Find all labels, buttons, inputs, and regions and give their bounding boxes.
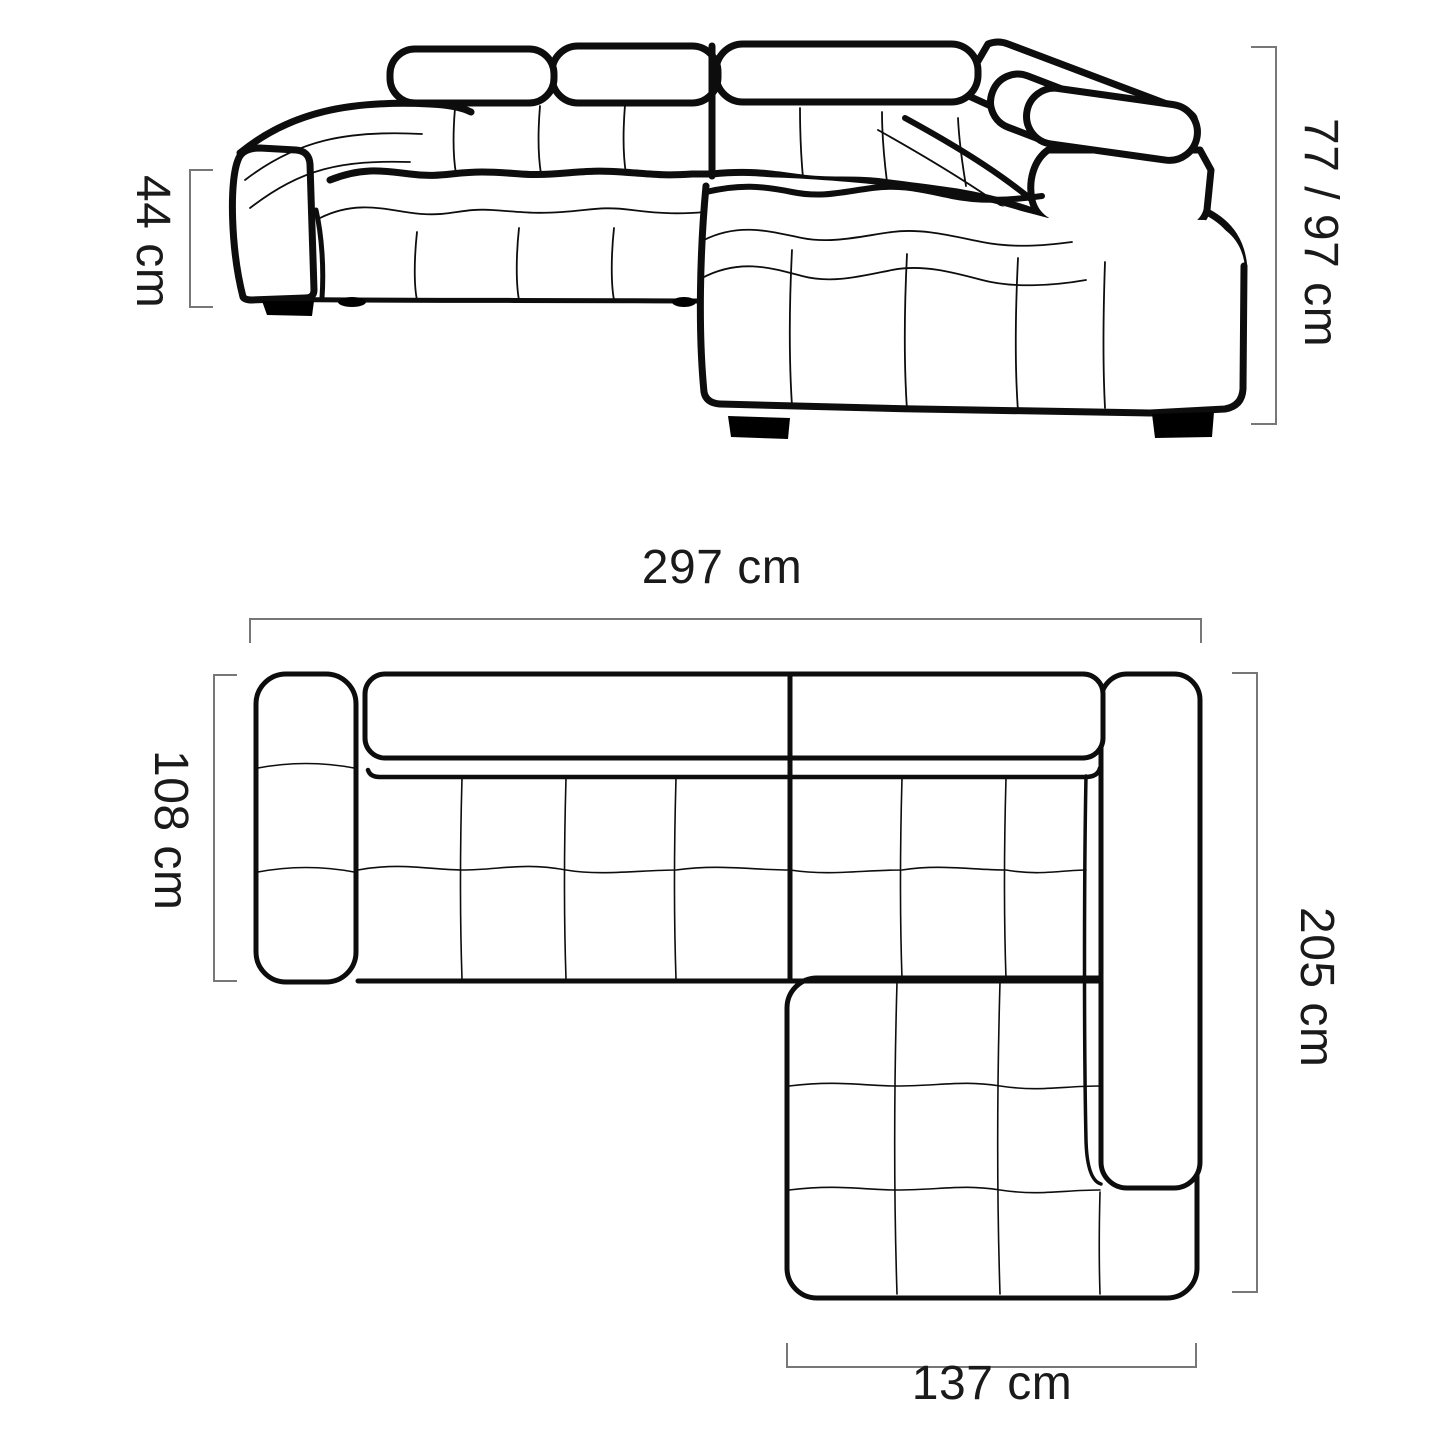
bracket-seat-height [190, 170, 213, 307]
dimension-label-total-height: 77 / 97 cm [1288, 88, 1348, 378]
dimension-label-seat-height: 44 cm [120, 162, 180, 322]
plan-chaise-tuft [1099, 1192, 1100, 1294]
plan-right-armrest [1101, 674, 1200, 1188]
plan-backrest [365, 674, 1103, 758]
plan-seat-tuft [358, 866, 1086, 872]
back-tuft-line [882, 112, 887, 182]
sofa-dimension-diagram: 44 cm 77 / 97 cm 297 cm 108 cm 205 cm 13… [0, 0, 1440, 1440]
sofa-foot [672, 297, 696, 307]
chaise-foot [1152, 412, 1214, 438]
back-tuft-line [800, 108, 803, 178]
seat-tuft-line [612, 228, 614, 300]
back-tuft-line [624, 105, 626, 174]
plan-seat-tuft [675, 778, 677, 979]
plan-left-armrest [256, 674, 356, 982]
headrest-cushion-3 [716, 44, 978, 102]
seat-tuft-wave [320, 207, 705, 218]
seat-tuft-line [517, 228, 519, 300]
dimension-label-total-depth: 205 cm [1284, 902, 1344, 1072]
bracket-total-depth [1232, 673, 1257, 1292]
seat-base-line [262, 299, 700, 301]
bracket-total-height [1251, 47, 1276, 424]
left-armrest-front [232, 148, 314, 300]
plan-seat-tuft [461, 778, 463, 979]
plan-seat-tuft [1005, 778, 1007, 979]
plan-backrest-band [368, 768, 1100, 777]
dimension-label-chaise-width: 137 cm [842, 1356, 1142, 1411]
dimension-label-total-width: 297 cm [572, 540, 872, 595]
front-view-drawing [232, 42, 1245, 439]
plan-seat-tuft [901, 778, 903, 979]
chaise-foot [728, 416, 790, 439]
dimension-label-main-depth: 108 cm [138, 748, 198, 913]
plan-seat-tuft [565, 778, 567, 979]
sofa-diagram-svg [0, 0, 1440, 1440]
bracket-main-depth [214, 675, 237, 981]
bracket-total-width [250, 619, 1201, 643]
back-tuft-line [454, 108, 456, 174]
headrest-cushion-1 [390, 49, 554, 103]
sofa-foot [262, 301, 314, 316]
sofa-foot [338, 297, 366, 307]
back-tuft-line [539, 106, 541, 174]
headrest-cushion-2 [552, 46, 718, 103]
seat-tuft-line [415, 232, 417, 300]
plan-view-drawing [256, 674, 1200, 1298]
